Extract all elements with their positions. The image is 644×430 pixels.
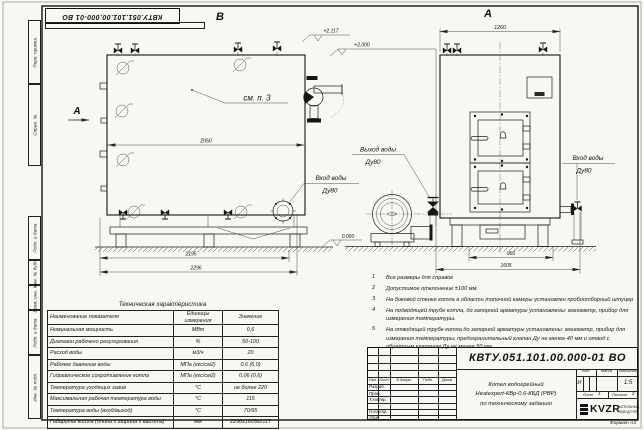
margin-field-inv-podl: Инв. № подл. [28, 355, 41, 419]
margin-field-sprav-no: Справ. № [28, 84, 41, 166]
tb-row-prov: Пров. [369, 392, 390, 396]
tb-description: Котел водогрейный Heatexpert-КВр-0,6-КБД… [456, 369, 576, 421]
tb-line [583, 376, 584, 392]
view-b-boiler-side: В см. п. 3 А [68, 11, 359, 276]
ground-line-b [95, 247, 333, 252]
note-item: 1Все размеры для справок [372, 274, 635, 283]
inspection-hatch [527, 77, 552, 98]
elev-0000: 0.000 [323, 234, 362, 246]
tb-col-doc: N докум. [390, 377, 418, 384]
margin-field-vzam-inv: Взам. инв. № [28, 285, 41, 310]
margin-field-perv-primen: Перв. примен. [28, 20, 41, 84]
note-item: 3На боковой стенке котла в области топоч… [372, 296, 635, 305]
svg-text:+2.117: +2.117 [323, 29, 338, 35]
tb-row-razrab: Разраб. [369, 385, 390, 389]
tech-row: Температура уходящих газов°Сне более 220 [48, 382, 279, 394]
margin-field-inv-dubl: Инв. № дубл. [28, 260, 41, 285]
tb-line [368, 403, 456, 404]
tech-row: Габариты котла (длина х ширина х высота)… [48, 417, 279, 429]
lock-icon [500, 132, 506, 138]
svg-text:Ду80: Ду80 [322, 188, 338, 195]
view-a-label: А [483, 8, 492, 20]
dim-2050: 2050 [108, 139, 304, 146]
svg-text:1605: 1605 [500, 263, 511, 269]
margin-field-podp-data-1: Подп. и дата [28, 216, 41, 260]
svg-text:960: 960 [507, 251, 516, 257]
svg-text:Вход воды: Вход воды [315, 174, 346, 182]
margin-field-podp-data-2: Подп. и дата [28, 310, 41, 355]
svg-text:Ду80: Ду80 [576, 168, 592, 175]
tech-characteristics: Техническая характеристика Наименование … [47, 301, 278, 429]
see-note-callout: см. п. 3 [191, 89, 288, 103]
format-note: Формат А3 [550, 421, 636, 426]
section-a-label: А [72, 106, 80, 117]
tb-col-date: Дата [438, 377, 456, 384]
tb-row-nkontr: Н.контр. [369, 410, 390, 414]
logo-bar-icon [580, 404, 588, 407]
tb-sheet-cell: Лист 1 [576, 391, 608, 398]
tb-line [368, 355, 456, 356]
air-vent-valve-icons [114, 42, 281, 56]
svg-text:2050: 2050 [199, 139, 212, 145]
svg-text:Выход воды: Выход воды [360, 146, 396, 154]
elevation-marks: +2.117 +2.000 0.000 [302, 29, 436, 247]
tb-row-tkontr: Т.контр. [369, 398, 390, 402]
tech-table-title: Техническая характеристика [47, 301, 278, 308]
svg-text:Вход воды: Вход воды [572, 154, 603, 162]
tb-line [368, 363, 456, 364]
svg-text:2296: 2296 [189, 266, 201, 272]
svg-text:1260: 1260 [494, 25, 506, 31]
elev-2000: +2.000 [330, 43, 436, 57]
tb-lit-value: И [576, 376, 583, 392]
inlet-valve-a [560, 202, 583, 244]
top-stamp-extra-box [45, 22, 205, 29]
svg-text:+2.000: +2.000 [354, 43, 370, 49]
tech-table-header: Наименование показателя Единицы измерени… [48, 311, 279, 325]
air-vent-valve-icons-a [443, 43, 547, 56]
tb-row-utv: Утв. [369, 416, 390, 420]
logo-bar-icon [580, 412, 588, 415]
tb-col-list: Лист [378, 377, 390, 384]
ground-line-a [345, 247, 596, 252]
tb-line [589, 376, 590, 392]
support-frame-b [110, 215, 307, 247]
tech-row: Диапазон рабочего регулирования%50-100 [48, 336, 279, 348]
tech-row: Максимальная рабочая температура воды°С1… [48, 394, 279, 406]
tb-mass-header: Масса [596, 369, 617, 376]
door-handle-icon [471, 137, 488, 141]
tb-doc-number: КВТУ.051.101.00.000-01 ВО [456, 348, 639, 369]
top-stamp-number: КВТУ.051.101.00.000-01 ВО [62, 13, 162, 20]
note-item: 4На подводящей трубе котла, до запорной … [372, 307, 635, 324]
elev-2117: +2.117 [302, 29, 350, 43]
outlet-valve-icon [427, 198, 439, 227]
svg-text:0.000: 0.000 [342, 234, 355, 240]
tech-row: Температура воды (вход/выход)°С70/95 [48, 405, 279, 417]
notes-list: 1Все размеры для справок 2Допустимое отк… [372, 274, 635, 354]
inlet-flange [270, 198, 296, 224]
outlet-callout: Выход воды Ду80 [352, 146, 431, 200]
kvzr-logo: KVZR КОТЕЛЬНЫЙ ЗАВОД РЭП [576, 398, 639, 421]
section-a-arrow: А [68, 106, 89, 120]
tech-table: Наименование показателя Единицы измерени… [47, 310, 279, 429]
logo-text: KVZR [590, 403, 620, 415]
weld-mark-icons [115, 58, 252, 219]
svg-text:Ду80: Ду80 [365, 159, 381, 166]
svg-text:2195: 2195 [184, 252, 196, 258]
inlet-b-callout: Вход воды Ду80 [288, 174, 359, 204]
tech-row: Гидравлическое сопротивление котлаМПа (к… [48, 371, 279, 383]
drawing-sheet: В см. п. 3 А [0, 0, 644, 430]
title-block: Изм. Лист N докум. Подп. Дата Разраб. Пр… [367, 347, 638, 420]
tb-line [368, 370, 456, 371]
see-note-text: см. п. 3 [243, 94, 271, 103]
lock-icon [500, 183, 506, 189]
tech-row: Расход водым3/ч20 [48, 348, 279, 360]
fan-smoke-exhauster: Выход воды Ду80 [352, 146, 452, 251]
logo-bar-icon [580, 408, 588, 411]
tech-row: Номинальная мощностьМВт0,6 [48, 325, 279, 337]
tb-sheets-cell: Листов 2 [608, 391, 640, 398]
inlet-a-callout: Вход воды Ду80 [562, 154, 615, 200]
flue-scroll [303, 76, 343, 123]
door-handle-icon [471, 188, 488, 192]
tb-col-izm: Изм. [368, 377, 378, 384]
note-item: 2Допустимое отклонение ±100 мм. [372, 285, 635, 294]
view-b-label: В [216, 11, 224, 23]
dims-b-bottom: 2195 2296 [100, 214, 297, 276]
tech-row: Рабочее давление водыМПа (кгс/см2)0,6 (6… [48, 359, 279, 371]
dims-a-bottom: 960 1605 [436, 49, 580, 274]
tb-scale-value: 1:5 [617, 376, 639, 392]
tb-col-sign: Подп. [418, 377, 438, 384]
